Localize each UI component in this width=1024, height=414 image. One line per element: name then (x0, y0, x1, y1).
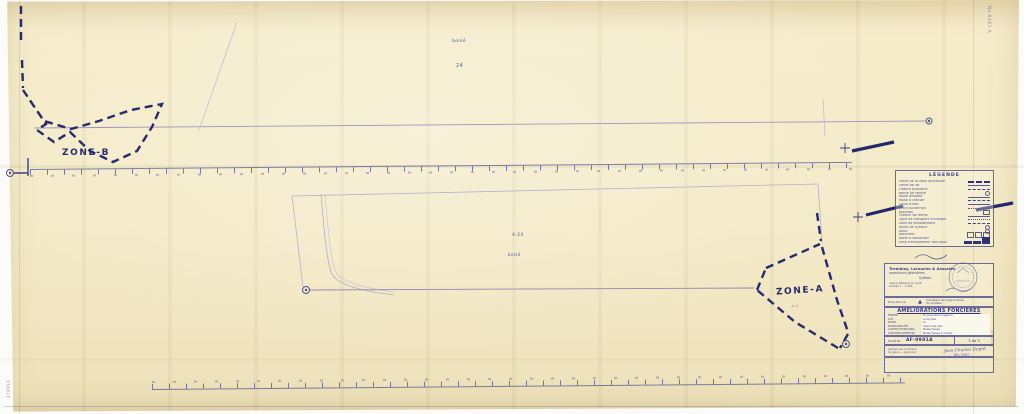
titleblock-plan-number-box: PLAN No AF-0901A 2 de 3 (884, 336, 994, 345)
upper-lot-number: 24 (456, 63, 463, 69)
faint-lot-line (199, 22, 237, 130)
upper-baseline-faint (34, 121, 925, 128)
field-outline (292, 184, 822, 287)
plan-linework (0, 0, 1024, 414)
legend-title: LÉGENDE (899, 173, 990, 178)
legend-symbol-bold-dash (964, 181, 990, 183)
legend-symbol-line (964, 197, 990, 198)
cross-mark (853, 212, 863, 222)
signature-date: fév. 1987 (954, 353, 970, 357)
legend-symbol-circle (964, 191, 990, 196)
margin-note: AF-0901A (990, 330, 994, 348)
firm-subtitle: arpenteurs-géomètres (889, 271, 925, 275)
upper-area-label: boisé (452, 39, 466, 44)
titleblock-direction-box: Direction du ▲ ministère de l'Agricultur… (884, 297, 994, 307)
sheet-number: 2 de 3 (955, 339, 993, 343)
corner-stamp-top-right: No 8461-A (987, 6, 992, 33)
legend-symbol-line (964, 185, 990, 186)
zone-a-boundary (757, 213, 848, 348)
approval-text: préparé par la division du génie — appro… (885, 346, 940, 356)
legend-symbol-dash (964, 200, 990, 201)
legend-symbol-line (964, 204, 990, 205)
direction-label: Direction du (885, 300, 914, 304)
stream-line (321, 194, 394, 295)
legend-symbol-swatches (964, 241, 990, 245)
faint-lot-line (823, 99, 825, 136)
signature-area: Jean-Charles Dupré fév. 1987 (940, 346, 993, 356)
plan-no-label: PLAN No (885, 339, 906, 343)
legend-symbol-box (964, 210, 990, 216)
zone-a-sublabel: a-1 (792, 304, 799, 308)
lower-lot-number: 4-24 (512, 233, 524, 238)
field-row: CIRCONSCRIPTIONBellechasse (comté) (888, 332, 990, 336)
boundary-dash (852, 142, 894, 151)
zone-b-boundary (21, 6, 162, 162)
legend-box: LÉGENDE limite de la zone améliorée limi… (895, 170, 994, 247)
station-connector (14, 158, 28, 176)
stream-line-2 (325, 194, 395, 292)
corner-stamp-bottom-left: 478916 (6, 380, 11, 398)
titleblock-empty-box (884, 357, 994, 373)
zone-b-label: ZONE-B (62, 148, 110, 158)
legend-symbol-line (964, 216, 990, 217)
legend-item: sens d'écoulement des eaux (899, 241, 990, 245)
lower-area-label: boisé (508, 252, 521, 257)
titleblock-firm-box: Tremblay, Larouche & Associés arpenteurs… (884, 263, 994, 297)
legend-symbol-dot (964, 219, 990, 220)
firm-city: Québec (919, 276, 931, 280)
cross-mark (840, 143, 850, 153)
plan-no-value: AF-0901A (906, 338, 954, 343)
survey-monuments (7, 118, 933, 348)
titleblock-signature-box: préparé par la division du génie — appro… (884, 345, 994, 357)
ministry-name: ministère de l'Agriculture du Québec (926, 299, 993, 306)
north-arrow-icon: ▲ (914, 299, 926, 305)
survey-note: relevé effectué en août échelle 1 : 1 00… (889, 282, 945, 289)
top-strip-scribble (915, 255, 947, 259)
titleblock-main-box: AMÉLIORATIONS FONCIÈRES FERMEM. Jean-Pau… (884, 307, 994, 336)
